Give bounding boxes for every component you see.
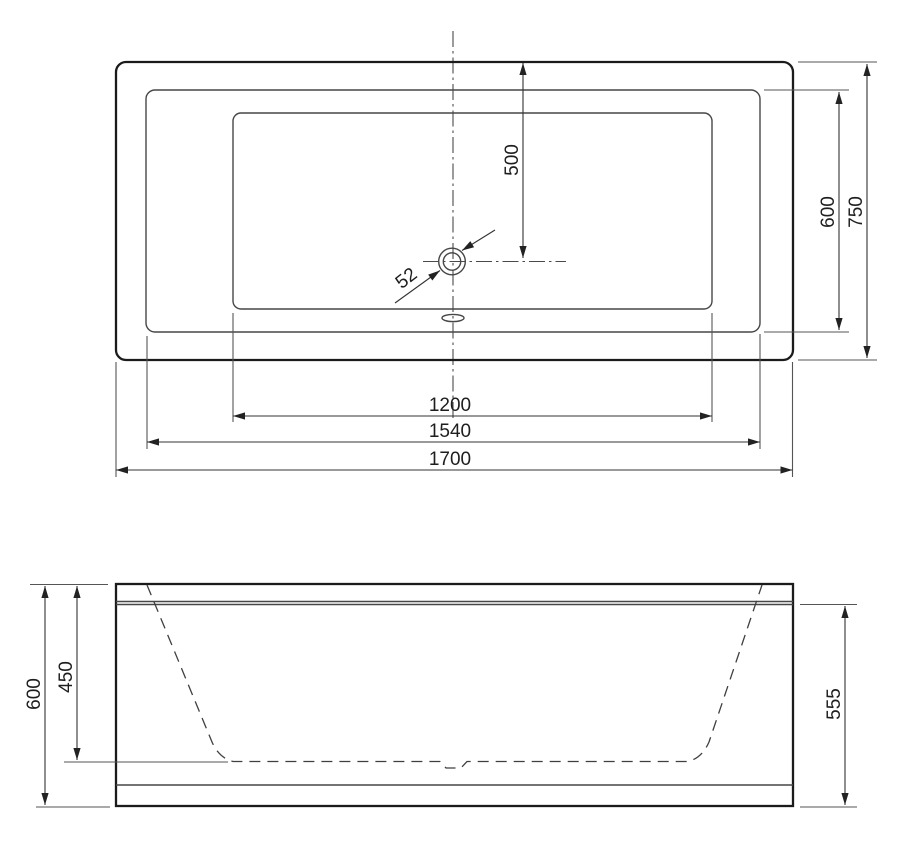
dim-label-1700: 1700 [429,449,471,470]
tub-basin-edge [233,113,712,309]
dim-drain-diameter: 52 [392,230,495,303]
dim-overall-length: 1700 [116,362,793,477]
front-view: 600 450 555 [24,584,857,807]
dim-label-1540: 1540 [429,421,471,442]
dim-apron-height: 555 [800,605,857,808]
dim-interior-depth: 450 [56,586,228,762]
dim-drain-offset: 500 [502,63,523,258]
leader-line-52-upper [462,230,495,251]
tub-front-body [116,584,793,806]
dim-overall-height: 600 [24,585,110,808]
dim-label-600-width: 600 [818,196,839,228]
dim-label-555: 555 [824,688,845,720]
bathtub-dimension-drawing: 500 52 600 750 [0,0,913,841]
dim-label-450: 450 [56,661,77,693]
dim-label-500: 500 [502,144,523,176]
technical-drawing-page: 500 52 600 750 [0,0,913,841]
dim-basin-length: 1200 [233,313,712,422]
dim-label-52: 52 [392,264,422,294]
dim-label-600-height: 600 [24,678,45,710]
top-view: 500 52 600 750 [116,31,877,477]
interior-profile-hidden-line [147,585,762,768]
dim-inner-width: 600 [764,90,849,332]
dim-label-750: 750 [846,196,867,228]
tub-outer-edge [116,62,793,360]
dim-label-1200: 1200 [429,395,471,416]
